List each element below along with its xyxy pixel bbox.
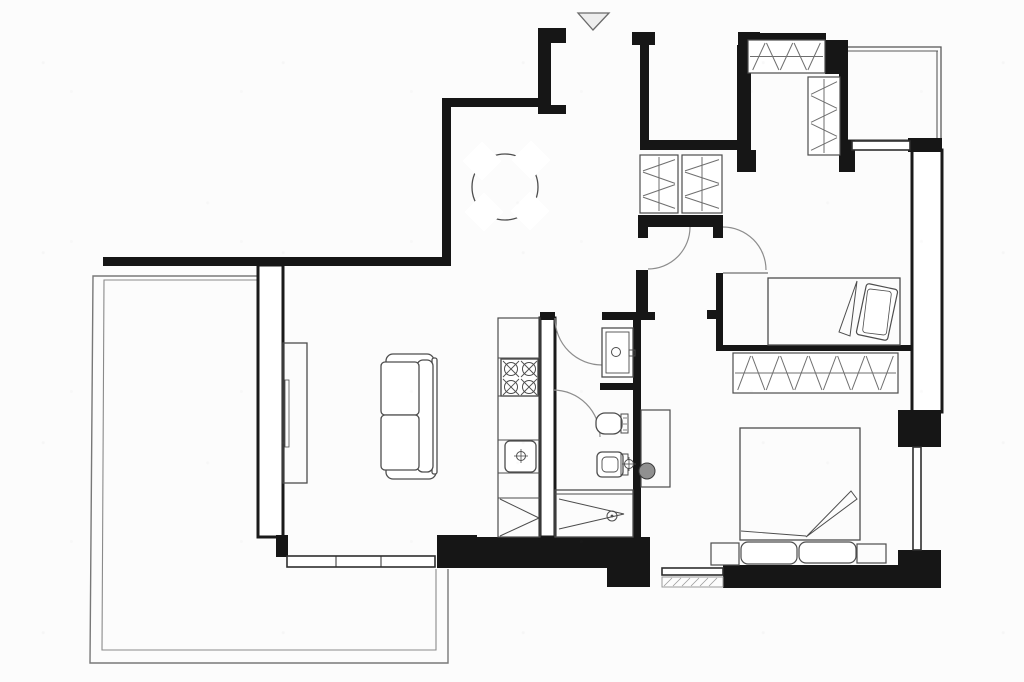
sideboard [283,343,307,483]
kitchen-bath-wall [540,318,555,537]
south-wall-step [607,568,650,587]
bed-double-sheet-line [741,531,806,536]
bed-single-pillow [856,283,898,341]
bedroom1-south-wall [716,345,912,351]
window-sill-hatch [664,578,672,586]
wc-north-wall [602,312,655,320]
window-sill-hatch [682,578,690,586]
bed-double-pillow [741,542,797,564]
bedroom2-south-wall [723,565,898,588]
corridor-door-arc [648,227,690,269]
window-sill-hatch [691,578,699,586]
floor-plan-page [0,0,1024,682]
east-exterior-wall [912,150,942,412]
plant [639,463,655,479]
entry-wall-flange-top [538,28,566,43]
kitchen-counter [498,318,540,537]
entry-wall-pier [538,43,551,107]
hall-closet-foot-right [713,227,723,238]
living-room-north-wall [103,257,450,266]
bidet [596,413,622,434]
stair-shaft-south-wall [640,140,743,150]
northeast-corner-block [825,40,848,74]
kitchen-wall-cap [540,312,555,320]
east-window [913,447,921,550]
bath-east-wall [633,312,641,538]
bedroom-separation-tick [707,310,716,319]
window-sill-hatch [700,578,708,586]
bedroom2-window [662,568,723,575]
living-room-west-wall [258,265,283,537]
balcony-south-pier [908,138,942,152]
kitchen-cabinet-diagonal [500,518,539,536]
southeast-corner-block [898,550,941,588]
south-wall-block-a [437,535,477,568]
dining-chair [511,140,551,180]
wc-door-arc [555,318,602,365]
dining-west-wall [442,98,451,266]
balcony-outline [845,47,941,140]
stair-shaft-west-wall [640,45,649,141]
kitchen-south-wall [477,537,650,568]
dining-chair [462,141,502,181]
floor-plan-drawing [0,0,1024,682]
east-wall-pier [898,410,941,447]
nightstand [857,544,886,563]
toilet [597,452,623,477]
bed-double [740,428,860,540]
sideboard-inner [285,380,289,447]
wc-sink [602,328,633,377]
entrance-arrow [578,13,609,30]
bed-single-blanket-fold [839,281,857,336]
sofa-cushion [381,362,419,415]
nightstand [711,543,739,565]
kitchen-cabinet-diagonal [500,499,539,518]
bed-double-pillow [799,542,856,563]
shower-drain-dot [611,515,614,518]
bath-door-arc [553,390,600,437]
window-sill-hatch [709,578,717,586]
hall-closet-south-wall [638,215,723,227]
bedroom1-door-arc [723,227,766,270]
entry-wall-flange-bottom [538,105,566,114]
corridor-east-stub [636,270,648,313]
hall-closet-foot-left [638,227,648,238]
dining-chair [510,191,550,231]
sofa-cushion [381,415,419,470]
stair-shaft-flange-left [632,32,655,45]
bedroom1-west-wall-foot [737,150,756,172]
balcony-window [852,141,910,150]
shower-zigzag [559,499,624,529]
living-room-window [287,556,435,567]
window-sill-hatch [673,578,681,586]
living-room-wall-step [276,535,288,557]
bed-double-blanket-fold [806,491,857,537]
dining-north-wall [442,98,541,107]
bedroom-separation-stub [716,273,723,351]
dining-chair [464,192,504,232]
